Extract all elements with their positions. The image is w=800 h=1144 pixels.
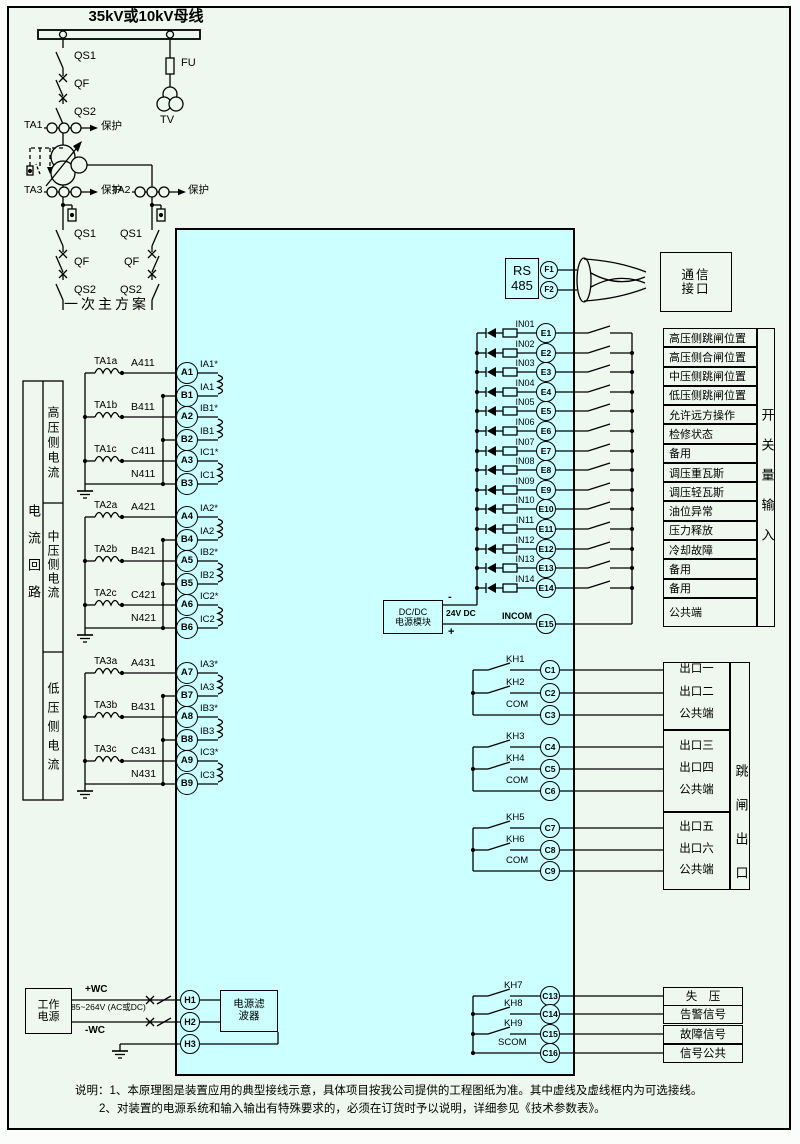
working-power-line2: 电源 [38, 1011, 60, 1023]
terminal-A4: A4 [176, 506, 198, 528]
wire-number-label: B411 [131, 402, 155, 414]
terminal-C4: C4 [540, 737, 560, 757]
contact-label: KH3 [506, 732, 524, 743]
mv-current-cell-label: 中压侧电流 [47, 530, 59, 600]
output-function-label: 出口六 [663, 843, 730, 856]
winding-label: IB1* [200, 404, 218, 415]
output-function-label: 公共端 [663, 784, 730, 797]
terminal-B9: B9 [176, 773, 198, 795]
terminal-E1: E1 [536, 323, 556, 343]
terminal-A1: A1 [176, 362, 198, 384]
output-function-label: 出口三 [663, 740, 730, 753]
winding-label: IC2 [200, 615, 215, 626]
wire-number-label: N431 [131, 769, 156, 781]
terminal-E5: E5 [536, 401, 556, 421]
wire-number-label: N421 [131, 613, 156, 625]
current-loop-side-label: 电流回路 [27, 504, 40, 612]
input-function-cell: 低压侧跳闸位置 [663, 386, 757, 405]
input-function-cell: 压力释放 [663, 521, 757, 540]
ct-name-label: TA3a [94, 656, 117, 667]
label-layer: 35kV或10kV母线 一次主方案 电流回路 高压侧电流 中压侧电流 低压侧电流… [0, 0, 800, 1144]
qs1-label: QS1 [74, 50, 96, 62]
power-plus-wire-label: +WC [85, 984, 108, 995]
notes-line2: 2、对装置的电源系统和输入输出有特殊要求的，必须在订货时予以说明，详细参见《技术… [99, 1103, 606, 1116]
input-function-cell: 中压侧跳闸位置 [663, 367, 757, 386]
protect-label: 保护 [101, 185, 122, 197]
terminal-C8: C8 [540, 840, 560, 860]
output-function-label: 公共端 [663, 708, 730, 721]
working-power-line1: 工作 [38, 999, 60, 1011]
winding-label: IC1* [200, 448, 218, 459]
input-function-cell: 检修状态 [663, 424, 757, 443]
contact-label: KH6 [506, 835, 524, 846]
ct-name-label: TA3c [94, 744, 117, 755]
ct-name-label: TA2c [94, 588, 117, 599]
terminal-E15: E15 [536, 614, 556, 634]
input-function-cell: 高压侧合闸位置 [663, 347, 757, 366]
input-function-cell: 备用 [663, 579, 757, 598]
wire-number-label: B421 [131, 546, 156, 558]
qf-label: QF [74, 78, 89, 90]
input-wire-label: IN08 [512, 456, 538, 466]
terminal-B2: B2 [176, 429, 198, 451]
terminal-E2: E2 [536, 343, 556, 363]
contact-label: SCOM [498, 1038, 527, 1049]
input-wire-label: IN07 [512, 437, 538, 447]
comm-interface-box: 通信 接口 [660, 252, 732, 312]
power-minus-wire-label: -WC [85, 1025, 105, 1036]
primary-scheme-caption: 一次主方案 [64, 297, 149, 313]
terminal-B7: B7 [176, 685, 198, 707]
qs2-label: QS2 [120, 284, 142, 296]
terminal-C3: C3 [540, 705, 560, 725]
output-function-label: 出口五 [663, 821, 730, 834]
input-function-cell: 备用 [663, 444, 757, 463]
terminal-H1: H1 [180, 990, 200, 1010]
comm-interface-line1: 通信 [681, 268, 710, 282]
terminal-C7: C7 [540, 818, 560, 838]
input-function-cell: 调压重瓦斯 [663, 463, 757, 482]
ta1-label: TA1 [24, 120, 42, 132]
terminal-E11: E11 [536, 519, 556, 539]
contact-label: COM [506, 856, 528, 867]
qf-label: QF [124, 256, 139, 268]
terminal-E13: E13 [536, 558, 556, 578]
terminal-F2: F2 [540, 281, 558, 299]
output-function-label: 出口一 [663, 663, 730, 676]
input-wire-label: IN05 [512, 397, 538, 407]
terminal-F1: F1 [540, 261, 558, 279]
ct-name-label: TA1a [94, 356, 117, 367]
contact-label: KH1 [506, 655, 524, 666]
input-wire-label: IN12 [512, 535, 538, 545]
ta3-label: TA3 [24, 185, 42, 197]
terminal-A3: A3 [176, 450, 198, 472]
terminal-B3: B3 [176, 473, 198, 495]
hv-current-cell-label: 高压侧电流 [47, 406, 59, 481]
terminal-E3: E3 [536, 362, 556, 382]
terminal-C6: C6 [540, 781, 560, 801]
terminal-E14: E14 [536, 578, 556, 598]
busbar-title: 35kV或10kV母线 [58, 9, 234, 26]
trip-output-strip-label: 跳闸出口 [735, 764, 748, 900]
wire-number-label: C431 [131, 746, 156, 758]
ct-name-label: TA1b [94, 400, 117, 411]
winding-label: IB1 [200, 427, 214, 438]
comm-interface-line2: 接口 [681, 282, 710, 296]
incom-wire-label: INCOM [502, 611, 532, 621]
winding-label: IA2* [200, 504, 218, 515]
terminal-B5: B5 [176, 573, 198, 595]
winding-label: IB3 [200, 727, 214, 738]
rs485-line2: 485 [511, 279, 533, 294]
terminal-C14: C14 [540, 1004, 560, 1024]
rs485-box: RS 485 [505, 258, 539, 299]
terminal-H3: H3 [180, 1034, 200, 1054]
terminal-E10: E10 [536, 499, 556, 519]
power-filter-line2: 波器 [239, 1011, 260, 1023]
ct-name-label: TA2a [94, 500, 117, 511]
output-function-label: 公共端 [663, 864, 730, 877]
winding-label: IA3* [200, 660, 218, 671]
terminal-C13: C13 [540, 986, 560, 1006]
lv-current-cell-label: 低压侧电流 [47, 682, 59, 777]
wire-number-label: B431 [131, 702, 156, 714]
contact-label: KH5 [506, 813, 524, 824]
winding-label: IC3* [200, 748, 218, 759]
terminal-B6: B6 [176, 617, 198, 639]
terminal-C16: C16 [540, 1043, 560, 1063]
dcdc-module-box: DC/DC 电源模块 [383, 600, 443, 634]
qs1-label: QS1 [120, 228, 142, 240]
contact-label: KH7 [504, 981, 522, 992]
input-wire-label: IN02 [512, 339, 538, 349]
contact-label: COM [506, 776, 528, 787]
terminal-C1: C1 [540, 660, 560, 680]
terminal-E9: E9 [536, 480, 556, 500]
input-wire-label: IN03 [512, 358, 538, 368]
signal-function-cell: 信号公共 [663, 1044, 743, 1063]
qf-label: QF [74, 256, 89, 268]
wire-number-label: A421 [131, 502, 156, 514]
protect-label: 保护 [188, 185, 209, 197]
wire-number-label: N411 [131, 469, 155, 481]
dcdc-volt-label: 24V DC [446, 609, 476, 619]
winding-label: IC2* [200, 592, 218, 603]
ct-name-label: TA2b [94, 544, 117, 555]
dcdc-minus-label: - [448, 591, 452, 603]
output-function-label: 出口二 [663, 686, 730, 699]
winding-label: IC1 [200, 471, 215, 482]
power-filter-box: 电源滤 波器 [220, 990, 278, 1032]
terminal-A8: A8 [176, 706, 198, 728]
terminal-B8: B8 [176, 729, 198, 751]
input-wire-label: IN04 [512, 378, 538, 388]
switch-input-strip-label: 开关量输入 [761, 408, 774, 558]
terminal-C9: C9 [540, 861, 560, 881]
working-power-box: 工作 电源 [25, 988, 72, 1034]
input-wire-label: IN13 [512, 554, 538, 564]
terminal-A2: A2 [176, 406, 198, 428]
qs1-label: QS1 [74, 228, 96, 240]
qs2-label: QS2 [74, 284, 96, 296]
rs485-line1: RS [513, 264, 531, 279]
terminal-B4: B4 [176, 529, 198, 551]
winding-label: IA2 [200, 527, 214, 538]
input-wire-label: IN09 [512, 476, 538, 486]
terminal-E6: E6 [536, 421, 556, 441]
input-function-cell: 备用 [663, 559, 757, 578]
input-function-cell: 调压轻瓦斯 [663, 482, 757, 501]
terminal-C15: C15 [540, 1024, 560, 1044]
winding-label: IA1 [200, 383, 214, 394]
tv-label: TV [160, 114, 174, 126]
contact-label: COM [506, 700, 528, 711]
notes-line1: 说明：1、本原理图是装置应用的典型接线示意，具体项目按我公司提供的工程图纸为准。… [75, 1085, 702, 1098]
winding-label: IB2 [200, 571, 214, 582]
input-function-cell: 高压侧跳闸位置 [663, 328, 757, 347]
ct-name-label: TA1c [94, 444, 117, 455]
terminal-A9: A9 [176, 750, 198, 772]
terminal-E12: E12 [536, 539, 556, 559]
input-wire-label: IN10 [512, 495, 538, 505]
power-range-label: 85~264V (AC或DC) [71, 1003, 146, 1013]
winding-label: IC3 [200, 771, 215, 782]
winding-label: IB2* [200, 548, 218, 559]
wire-number-label: A431 [131, 658, 156, 670]
protect-label: 保护 [101, 121, 122, 133]
wire-number-label: C421 [131, 590, 156, 602]
input-function-cell: 油位异常 [663, 501, 757, 520]
terminal-A6: A6 [176, 594, 198, 616]
terminal-E4: E4 [536, 382, 556, 402]
winding-label: IA3 [200, 683, 214, 694]
output-function-label: 出口四 [663, 762, 730, 775]
dcdc-line1: DC/DC [399, 607, 428, 617]
winding-label: IA1* [200, 360, 218, 371]
input-function-cell: 公共端 [663, 598, 757, 627]
input-function-cell: 冷却故障 [663, 540, 757, 559]
input-wire-label: IN01 [512, 319, 538, 329]
terminal-C2: C2 [540, 683, 560, 703]
terminal-E7: E7 [536, 441, 556, 461]
wire-number-label: A411 [131, 358, 155, 370]
winding-label: IB3* [200, 704, 218, 715]
contact-label: KH4 [506, 754, 524, 765]
terminal-E8: E8 [536, 460, 556, 480]
terminal-B1: B1 [176, 385, 198, 407]
input-wire-label: IN06 [512, 417, 538, 427]
input-wire-label: IN14 [512, 574, 538, 584]
signal-function-cell: 失 压 [663, 987, 743, 1006]
wiring-diagram-page: 35kV或10kV母线 一次主方案 电流回路 高压侧电流 中压侧电流 低压侧电流… [0, 0, 800, 1144]
dcdc-line2: 电源模块 [395, 617, 431, 627]
contact-label: KH2 [506, 678, 524, 689]
contact-label: KH9 [504, 1019, 522, 1030]
dcdc-plus-label: + [448, 626, 454, 638]
fu-label: FU [181, 57, 196, 69]
wire-number-label: C411 [131, 446, 155, 458]
terminal-C5: C5 [540, 759, 560, 779]
terminal-A7: A7 [176, 662, 198, 684]
ct-name-label: TA3b [94, 700, 117, 711]
input-function-cell: 允许远方操作 [663, 405, 757, 424]
terminal-A5: A5 [176, 550, 198, 572]
input-wire-label: IN11 [512, 515, 538, 525]
contact-label: KH8 [504, 999, 522, 1010]
qs2-label: QS2 [74, 106, 96, 118]
signal-function-cell: 故障信号 [663, 1025, 743, 1044]
terminal-H2: H2 [180, 1012, 200, 1032]
signal-function-cell: 告警信号 [663, 1005, 743, 1024]
